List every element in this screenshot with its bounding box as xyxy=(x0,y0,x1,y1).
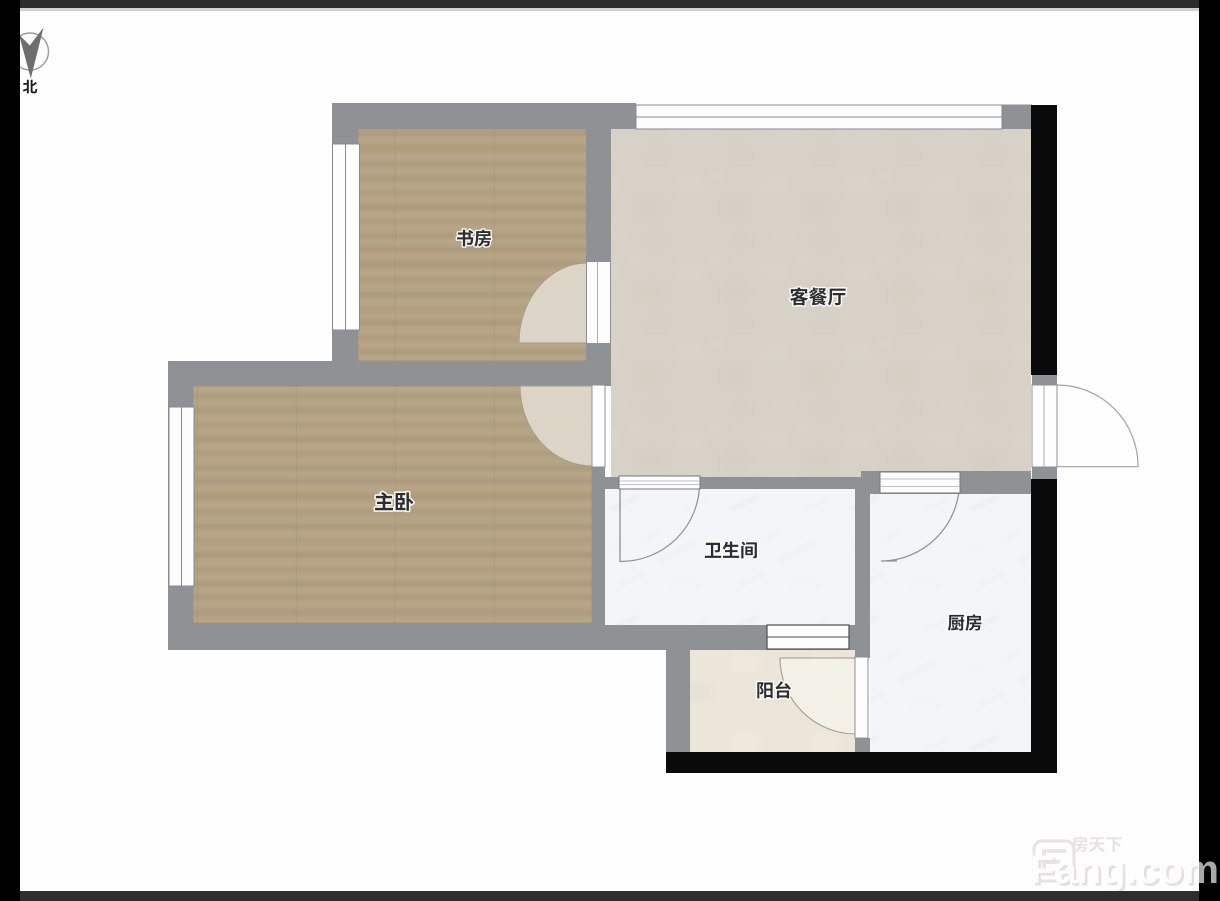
svg-text:Fang.com: Fang.com xyxy=(1030,848,1219,892)
